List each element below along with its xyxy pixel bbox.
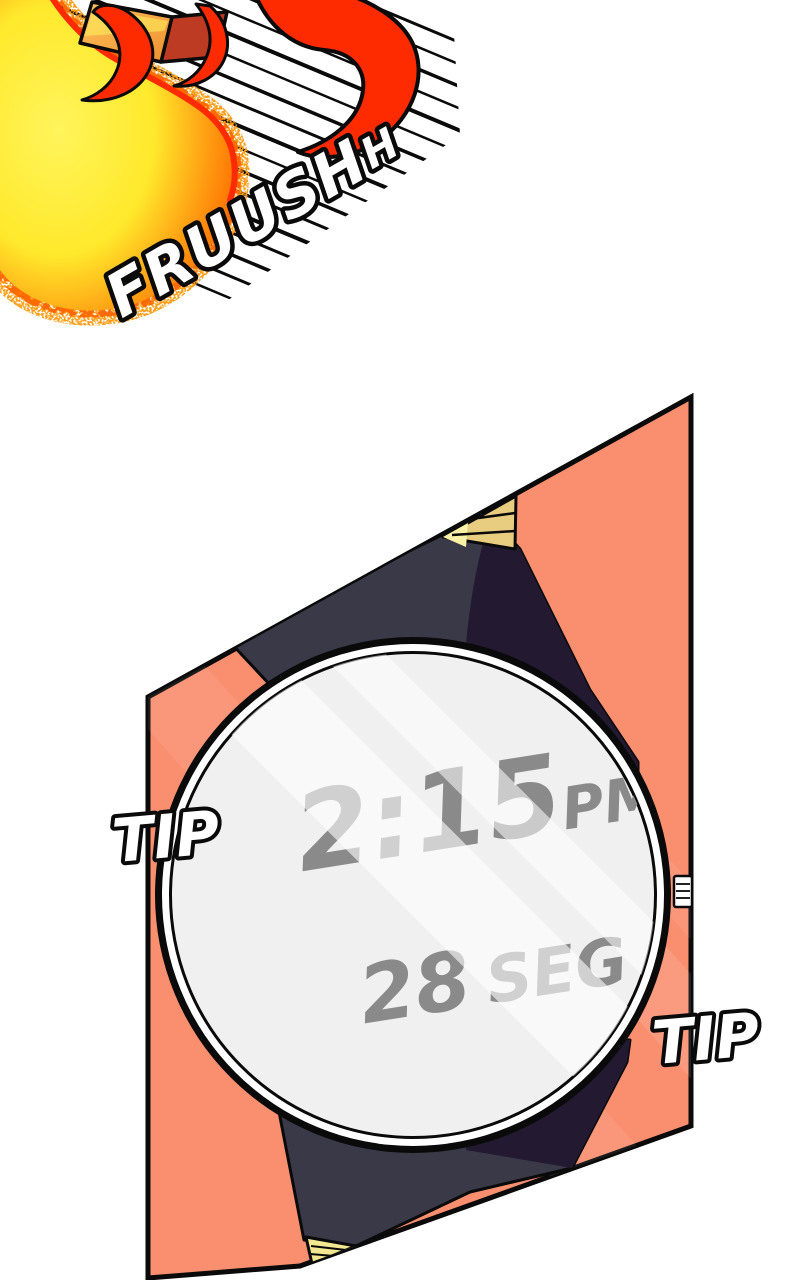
comic-panel: 2:15PM 28SEG	[0, 325, 800, 1280]
strap-clasp-top	[443, 496, 516, 549]
sfx-tip-right: TIP	[649, 1000, 762, 1079]
sfx-tip-left: TIP	[110, 798, 223, 877]
watch-crown	[674, 876, 692, 907]
comic-page: FRUUSHH	[0, 0, 800, 1280]
